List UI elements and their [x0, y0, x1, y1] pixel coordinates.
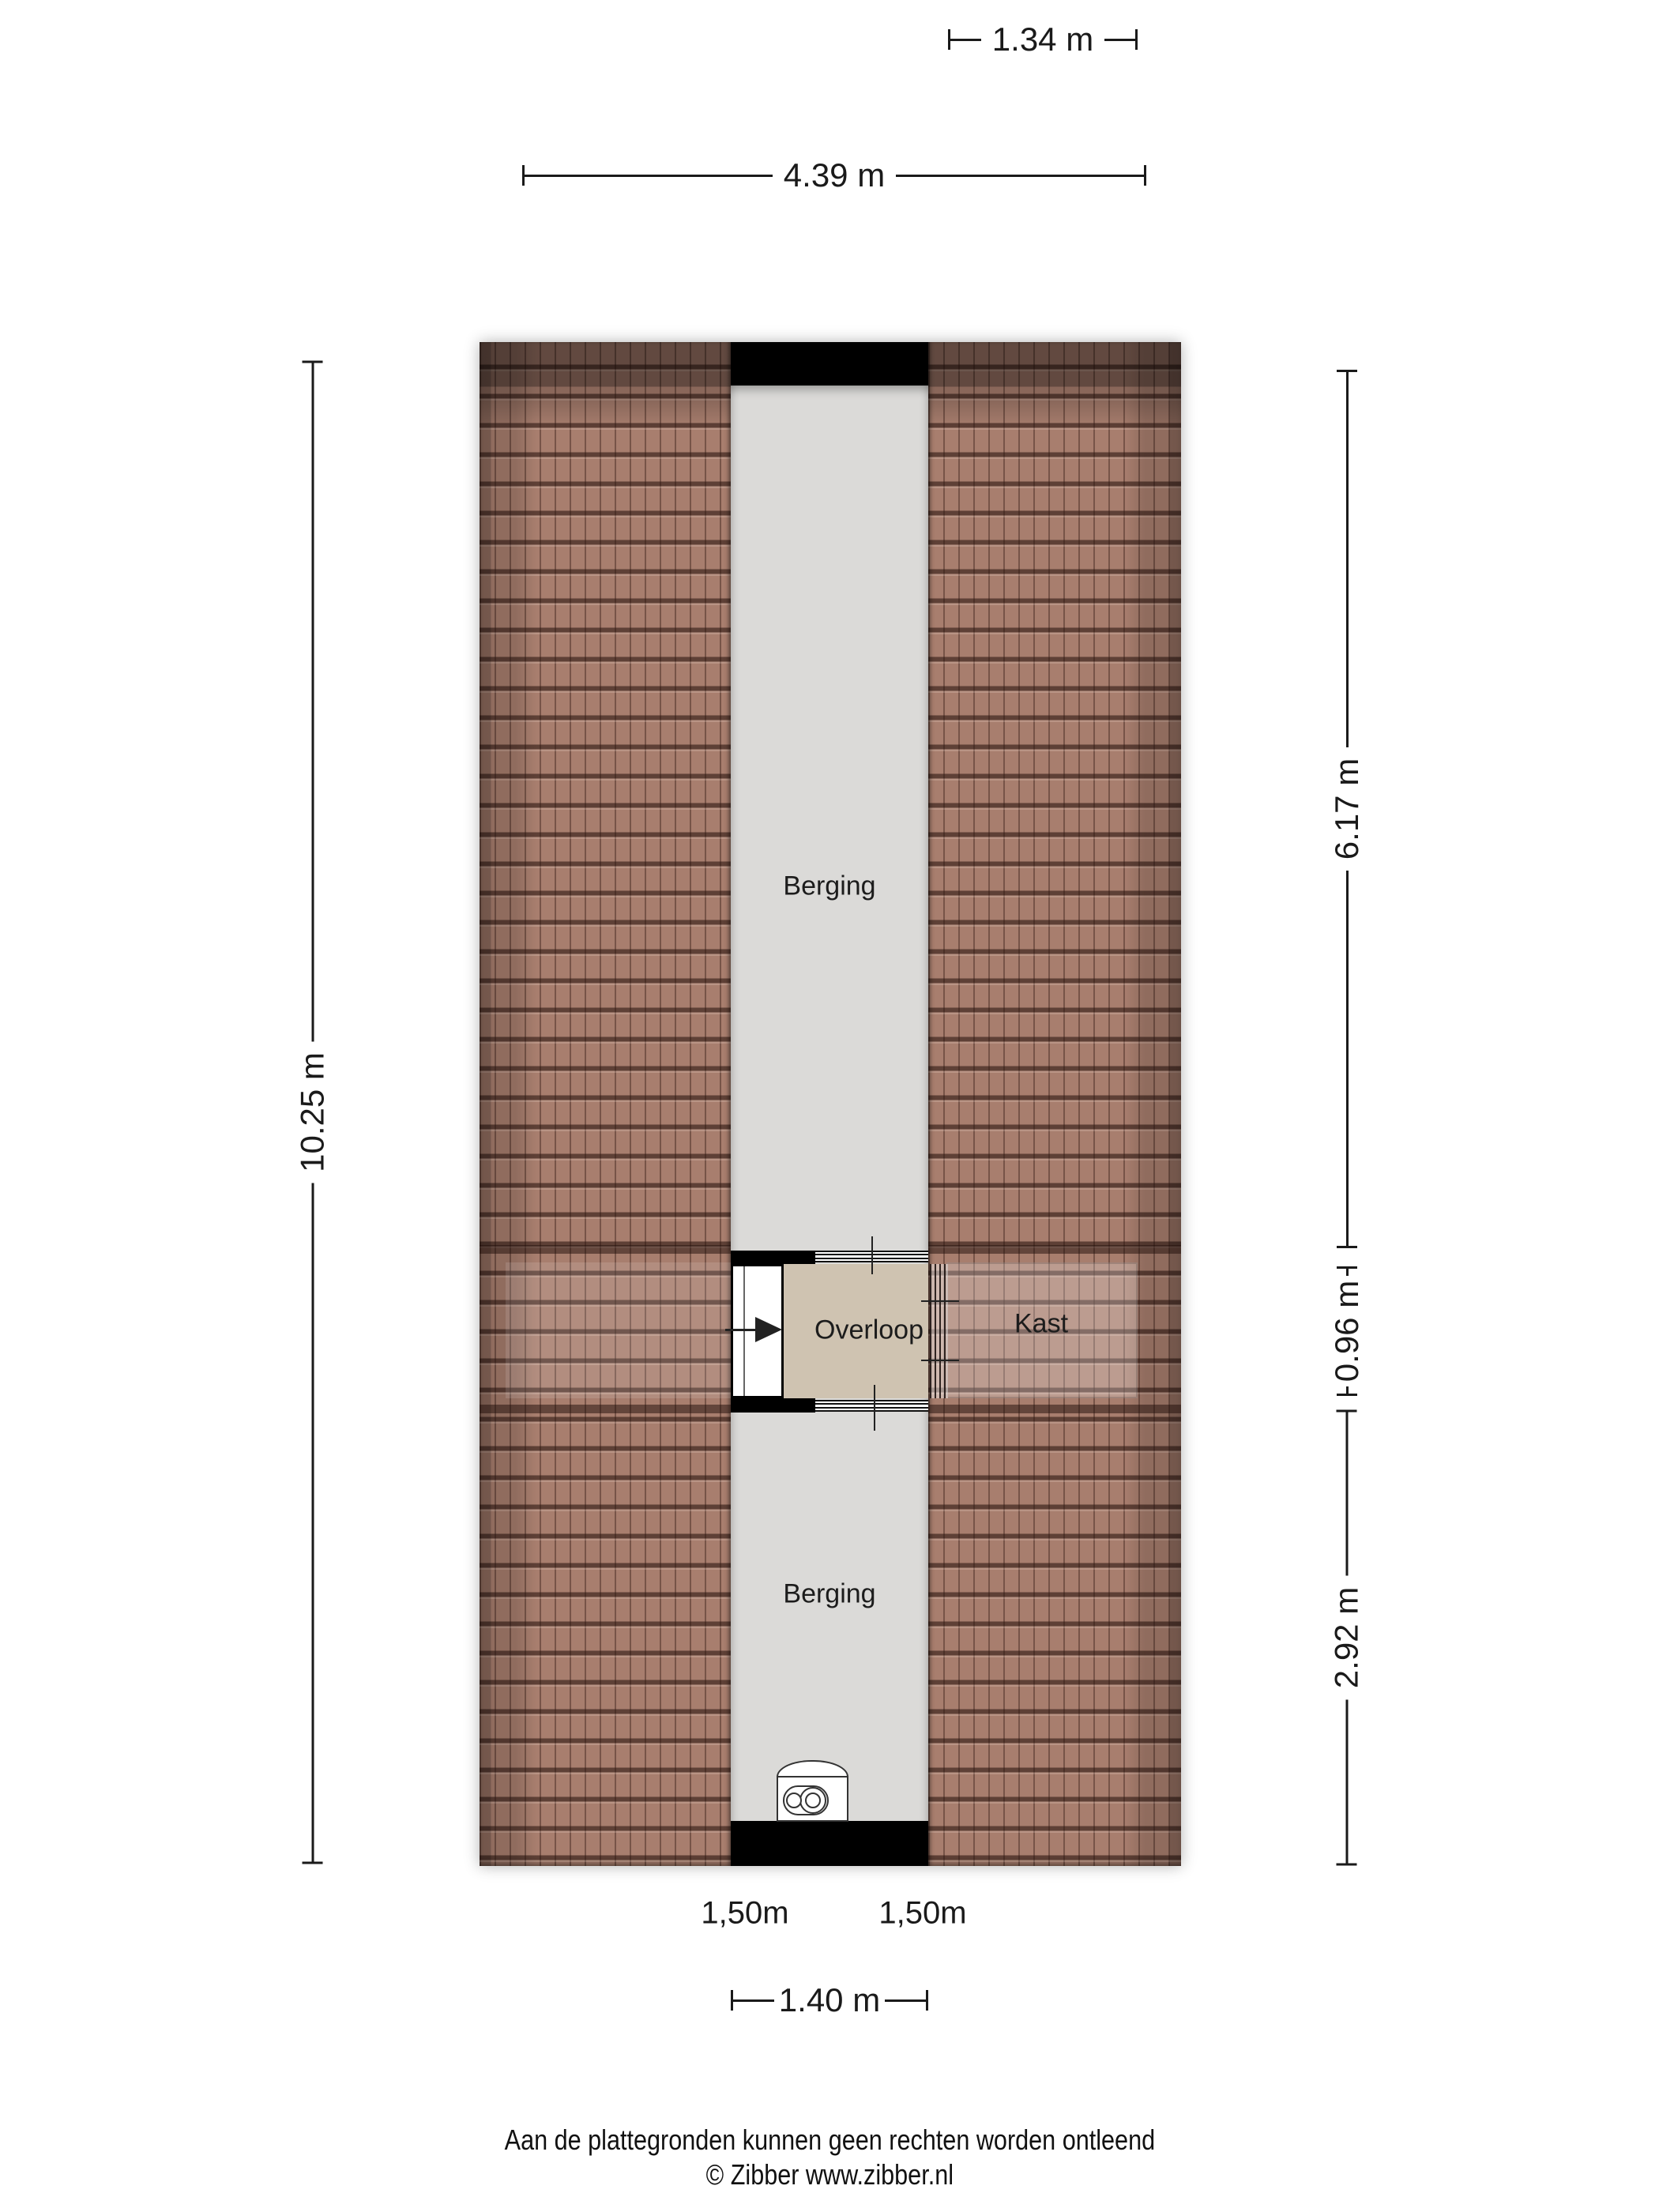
dimension-top-inner: 1.34 m: [948, 22, 1138, 57]
dimension-label: 10.25 m: [295, 1041, 330, 1183]
dimension-line: [1346, 1386, 1349, 1394]
staircase-stringer: [743, 1266, 745, 1396]
roof-section-line: [480, 1245, 731, 1254]
dimension-left: 10.25 m: [295, 361, 330, 1864]
dimension-line: [733, 1999, 774, 2002]
room-label-berging-bottom: Berging: [783, 1579, 875, 1610]
dimension-line: [525, 175, 773, 177]
dimension-label: 2.92 m: [1330, 1576, 1364, 1699]
dimension-tick: [1337, 1864, 1357, 1866]
boiler-icon: [786, 1793, 802, 1808]
dimension-tick: [303, 360, 323, 363]
roof-shading: [928, 342, 1181, 1866]
dimension-line: [1345, 1699, 1348, 1863]
top-wall: [731, 342, 928, 386]
dimension-tick: [1135, 29, 1138, 50]
stair-direction-arrow: [725, 1329, 757, 1331]
dimension-tick: [926, 1990, 928, 2011]
dimension-tick: [1144, 165, 1146, 186]
dimension-label: 6.17 m: [1330, 747, 1364, 871]
dimension-label: 1.40 m: [774, 1983, 885, 2018]
dimension-line: [1345, 1413, 1348, 1576]
dimension-tick: [1337, 1266, 1357, 1269]
window-symbol-bottom: [815, 1400, 928, 1412]
dimension-tick: [1337, 1410, 1357, 1413]
roof-section-line: [480, 1405, 731, 1413]
dimension-label: 4.39 m: [773, 158, 896, 193]
disclaimer-text: Aan de plattegronden kunnen geen rechten…: [0, 2124, 1659, 2157]
dimension-line: [1346, 372, 1349, 747]
copyright-text: © Zibber www.zibber.nl: [0, 2158, 1659, 2191]
door-tick: [921, 1360, 959, 1361]
dimension-label: 0.96 m: [1330, 1276, 1364, 1386]
dimension-line: [896, 175, 1144, 177]
headroom-label-left: 1,50m: [701, 1896, 788, 1932]
headroom-label-right: 1,50m: [878, 1896, 966, 1932]
dimension-line: [1346, 1269, 1349, 1276]
room-label-berging-top: Berging: [783, 871, 875, 902]
dimension-label: 1.34 m: [981, 22, 1104, 57]
overloop-wall-top: [731, 1251, 815, 1264]
kast-door-symbol: [930, 1264, 948, 1398]
roof-section-line: [928, 1245, 1181, 1254]
dimension-line: [1346, 871, 1349, 1246]
dimension-tick: [1337, 370, 1357, 372]
boiler-icon: [805, 1793, 821, 1808]
dimension-line: [950, 39, 981, 41]
dimension-tick: [303, 1862, 323, 1864]
window-center-tick: [874, 1385, 875, 1431]
room-label-overloop: Overloop: [814, 1315, 924, 1346]
dimension-right-lower: 2.92 m: [1330, 1410, 1364, 1866]
window-center-tick: [871, 1236, 873, 1274]
roof-section-line: [928, 1405, 1181, 1413]
dimension-top-outer: 4.39 m: [522, 158, 1146, 193]
dimension-tick: [1337, 1394, 1357, 1396]
dimension-bottom: 1.40 m: [731, 1983, 928, 2018]
bottom-wall: [731, 1821, 928, 1866]
door-tick: [921, 1300, 959, 1302]
overloop-wall-bottom: [731, 1398, 815, 1413]
dimension-line: [311, 1183, 314, 1862]
stair-arrow-icon: [755, 1317, 782, 1342]
dimension-right-middle: 0.96 m: [1330, 1266, 1364, 1396]
roof-mid-highlight: [506, 1262, 731, 1398]
dimension-line: [311, 363, 314, 1041]
roof-shading: [480, 342, 731, 1866]
dimension-line: [1104, 39, 1135, 41]
dimension-tick: [1337, 1246, 1357, 1248]
dimension-right-upper: 6.17 m: [1330, 370, 1364, 1248]
roof-left-panel: [480, 342, 731, 1866]
floorplan-canvas: 1.34 m 4.39 m 10.25 m 6.17 m 0.96 m: [0, 0, 1659, 2212]
roof-right-panel: [928, 342, 1181, 1866]
dimension-line: [885, 1999, 926, 2002]
room-label-kast: Kast: [1014, 1309, 1068, 1340]
